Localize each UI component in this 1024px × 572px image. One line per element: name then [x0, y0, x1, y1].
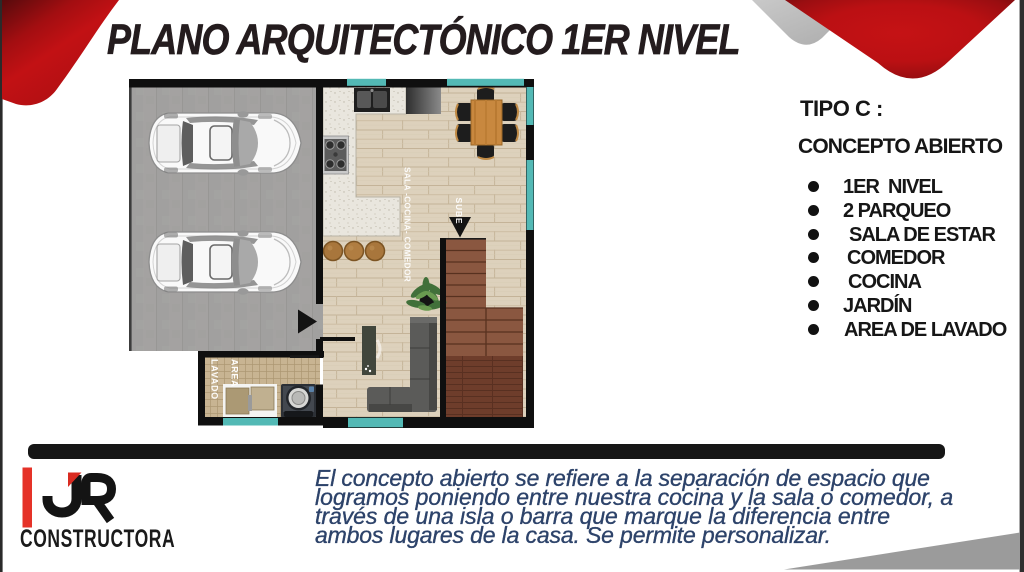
- svg-text:AREA: AREA: [230, 359, 240, 387]
- svg-text:LAVADO: LAVADO: [210, 359, 220, 400]
- svg-text:SUBE: SUBE: [454, 198, 464, 225]
- svg-text:SALA -COCINA- COMEDOR: SALA -COCINA- COMEDOR: [403, 167, 412, 282]
